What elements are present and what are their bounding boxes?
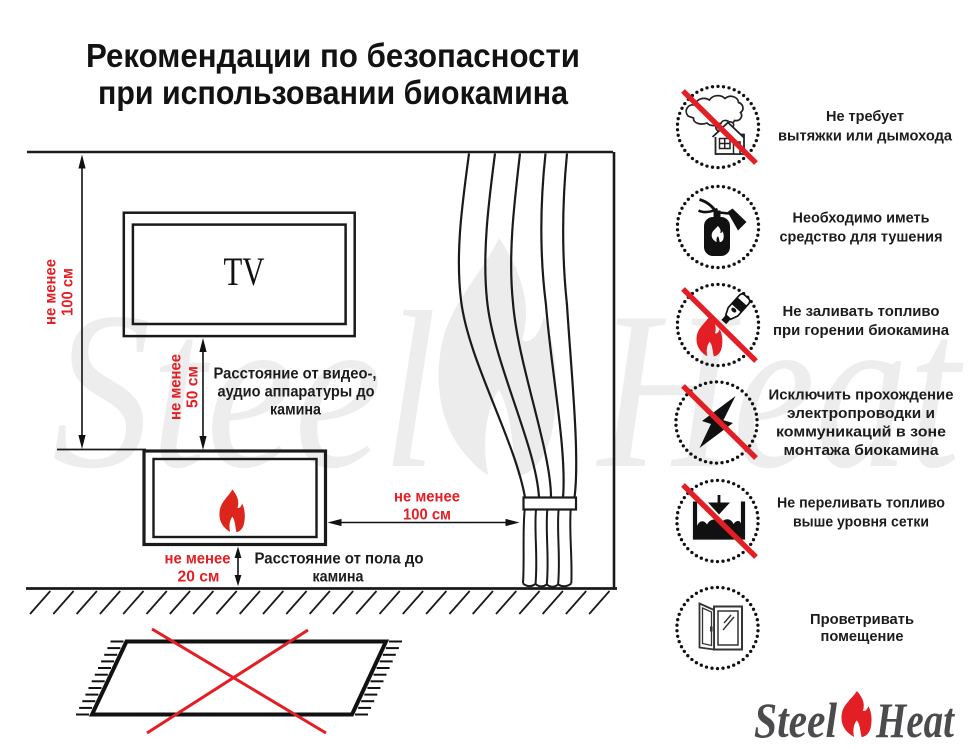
svg-text:при использовании биокамина: при использовании биокамина (98, 74, 569, 111)
svg-text:Необходимо иметь: Необходимо иметь (793, 210, 930, 227)
svg-text:не менее: не менее (394, 489, 460, 506)
svg-text:TV: TV (224, 249, 265, 294)
svg-text:не менее: не менее (165, 551, 231, 568)
svg-text:Проветривать: Проветривать (810, 611, 914, 628)
svg-text:средство для тушения: средство для тушения (780, 229, 943, 246)
svg-text:50 см: 50 см (185, 366, 202, 408)
svg-text:Исключить прохождение: Исключить прохождение (769, 387, 954, 404)
svg-text:Не заливать топливо: Не заливать топливо (783, 303, 940, 320)
svg-text:100 см: 100 см (403, 507, 451, 524)
svg-text:электропроводки и: электропроводки и (787, 405, 935, 422)
svg-text:при горении биокамина: при горении биокамина (773, 322, 950, 339)
svg-text:Не переливать топливо: Не переливать топливо (777, 495, 945, 512)
svg-text:аудио аппаратуры до: аудио аппаратуры до (218, 384, 375, 401)
svg-text:монтажа биокамина: монтажа биокамина (784, 442, 940, 459)
svg-text:камина: камина (270, 402, 321, 419)
svg-text:не менее: не менее (43, 259, 60, 325)
svg-text:Steel: Steel (754, 692, 837, 748)
svg-text:Heat: Heat (875, 692, 955, 748)
svg-text:не менее: не менее (168, 354, 185, 420)
svg-text:Не требует: Не требует (826, 108, 904, 125)
svg-text:100 см: 100 см (60, 268, 77, 316)
svg-text:выше уровня сетки: выше уровня сетки (793, 514, 929, 531)
svg-text:20 см: 20 см (178, 569, 220, 586)
svg-text:Расстояние от пола до: Расстояние от пола до (255, 551, 424, 568)
svg-text:помещение: помещение (821, 628, 904, 645)
svg-text:камина: камина (313, 569, 364, 586)
svg-text:коммуникаций в зоне: коммуникаций в зоне (776, 424, 946, 441)
svg-text:Рекомендации по безопасности: Рекомендации по безопасности (86, 37, 580, 74)
svg-text:Расстояние от видео-,: Расстояние от видео-, (214, 366, 377, 383)
svg-text:вытяжки или дымохода: вытяжки или дымохода (778, 128, 953, 145)
